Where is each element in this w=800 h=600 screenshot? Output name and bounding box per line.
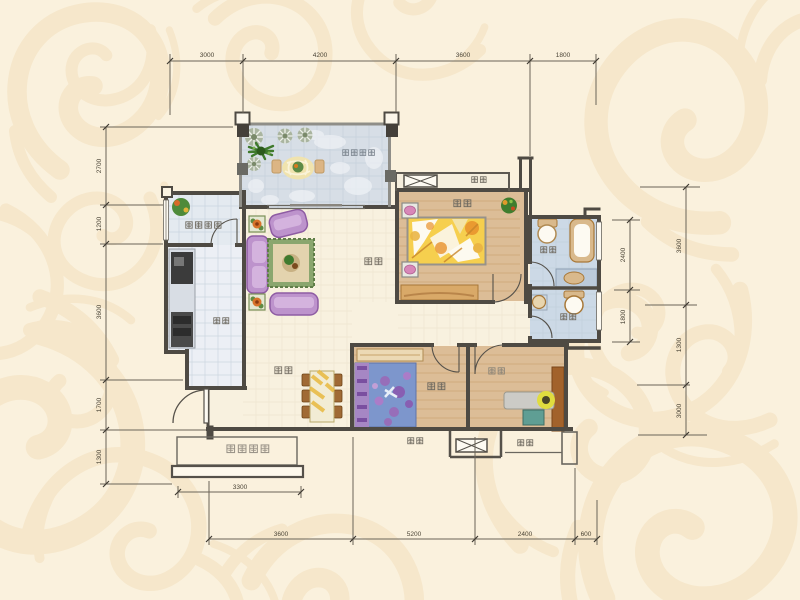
svg-text:2700: 2700 bbox=[96, 158, 103, 173]
svg-text:1300: 1300 bbox=[96, 449, 103, 464]
svg-text:3000: 3000 bbox=[676, 403, 683, 418]
svg-text:600: 600 bbox=[581, 531, 592, 538]
svg-text:2400: 2400 bbox=[518, 531, 533, 538]
svg-text:1700: 1700 bbox=[96, 397, 103, 412]
svg-text:4200: 4200 bbox=[313, 52, 328, 59]
svg-text:1300: 1300 bbox=[676, 337, 683, 352]
svg-text:5200: 5200 bbox=[407, 531, 422, 538]
svg-text:1200: 1200 bbox=[96, 216, 103, 231]
svg-text:1800: 1800 bbox=[620, 309, 627, 324]
svg-text:2400: 2400 bbox=[620, 247, 627, 262]
svg-text:3600: 3600 bbox=[456, 52, 471, 59]
svg-text:3000: 3000 bbox=[200, 52, 215, 59]
svg-text:3600: 3600 bbox=[274, 531, 289, 538]
svg-text:3600: 3600 bbox=[96, 304, 103, 319]
svg-text:1800: 1800 bbox=[556, 52, 571, 59]
svg-text:3600: 3600 bbox=[676, 238, 683, 253]
svg-text:3300: 3300 bbox=[233, 484, 248, 491]
